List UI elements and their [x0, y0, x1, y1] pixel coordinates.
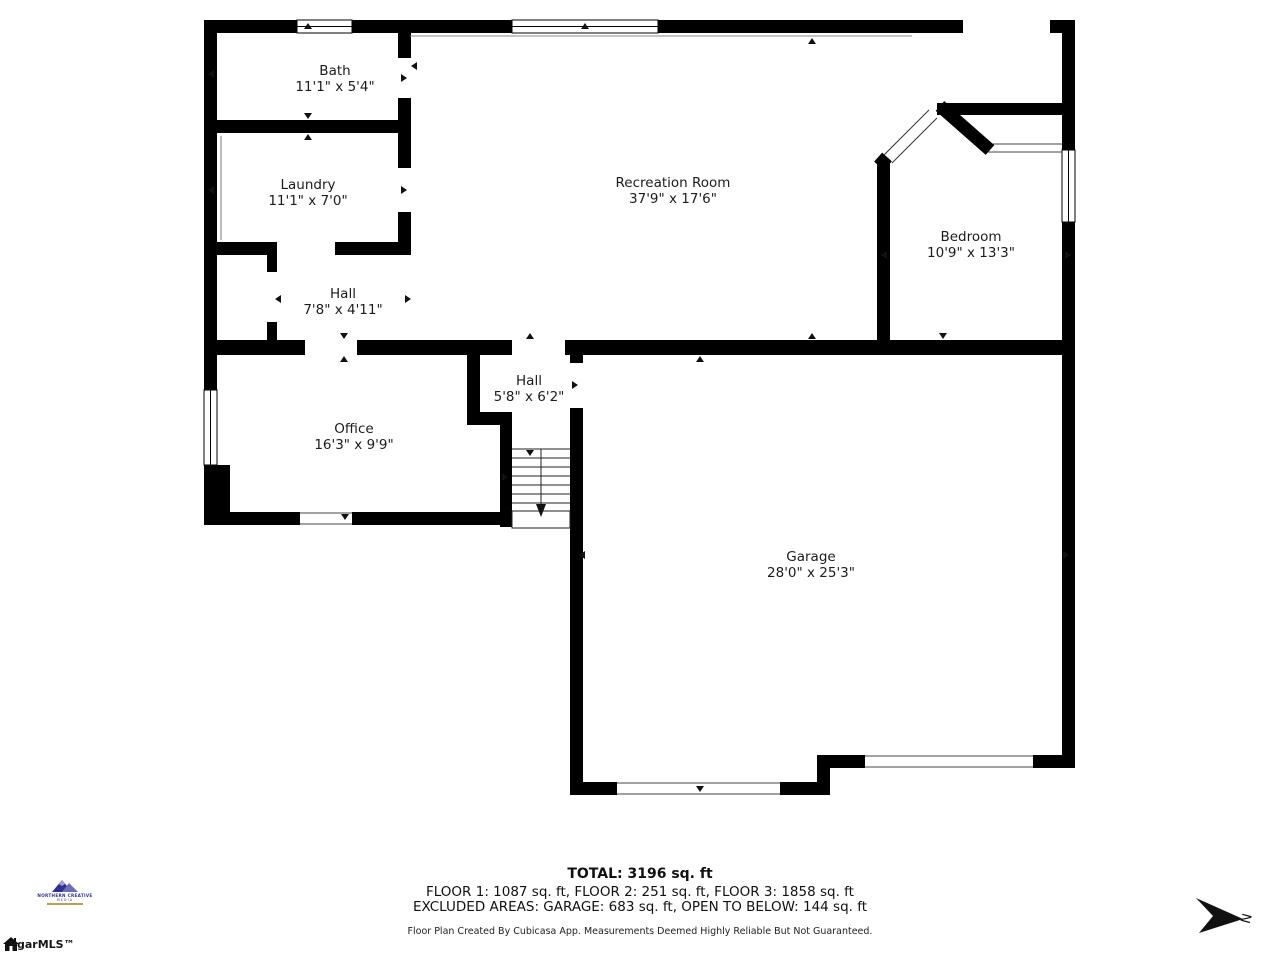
room-label-office: Office 16'3" x 9'9"	[314, 421, 393, 453]
room-label-hall-upper: Hall 7'8" x 4'11"	[303, 286, 382, 318]
room-dims: 10'9" x 13'3"	[927, 245, 1015, 261]
door-tick-icon	[304, 113, 312, 119]
room-name: Bedroom	[927, 229, 1015, 245]
photographer-logo: NORTHERN CREATIVE MEDIA	[34, 878, 96, 905]
room-name: Bath	[295, 63, 374, 79]
disclaimer-text: Floor Plan Created By Cubicasa App. Meas…	[0, 926, 1280, 937]
room-name: Office	[314, 421, 393, 437]
room-dims: 7'8" x 4'11"	[303, 302, 382, 318]
door-ticks	[208, 23, 1071, 792]
room-label-bedroom: Bedroom 10'9" x 13'3"	[927, 229, 1015, 261]
door-tick-icon	[526, 333, 534, 339]
door-tick-icon	[696, 356, 704, 362]
mls-label: garMLS™	[17, 938, 75, 951]
door-tick-icon	[275, 295, 281, 303]
mls-mark: garMLS™	[2, 936, 75, 952]
room-label-laundry: Laundry 11'1" x 7'0"	[268, 177, 347, 209]
walls	[204, 20, 1075, 795]
total-area-text: TOTAL: 3196 sq. ft	[0, 866, 1280, 882]
room-label-bath: Bath 11'1" x 5'4"	[295, 63, 374, 95]
logo-tagline-rule	[47, 903, 83, 905]
room-dims: 37'9" x 17'6"	[616, 191, 731, 207]
door-tick-icon	[341, 514, 349, 520]
room-name: Garage	[767, 549, 855, 565]
door-tick-icon	[401, 186, 407, 194]
door-tick-icon	[405, 295, 411, 303]
room-dims: 16'3" x 9'9"	[314, 437, 393, 453]
room-label-garage: Garage 28'0" x 25'3"	[767, 549, 855, 581]
logo-sub-text: MEDIA	[34, 898, 96, 902]
door-tick-icon	[340, 333, 348, 339]
floor-areas-text: FLOOR 1: 1087 sq. ft, FLOOR 2: 251 sq. f…	[0, 884, 1280, 900]
floor-plan-drawing: N	[0, 0, 1280, 960]
room-name: Laundry	[268, 177, 347, 193]
mountain-logo-icon	[50, 878, 80, 893]
door-tick-icon	[526, 450, 534, 456]
door-tick-icon	[939, 333, 947, 339]
door-tick-icon	[304, 134, 312, 140]
door-tick-icon	[808, 38, 816, 44]
room-name: Hall	[303, 286, 382, 302]
door-tick-icon	[572, 381, 578, 389]
room-name: Hall	[494, 373, 565, 389]
room-label-recreation-room: Recreation Room 37'9" x 17'6"	[616, 175, 731, 207]
door-tick-icon	[340, 356, 348, 362]
room-name: Recreation Room	[616, 175, 731, 191]
excluded-areas-text: EXCLUDED AREAS: GARAGE: 683 sq. ft, OPEN…	[0, 899, 1280, 915]
door-tick-icon	[401, 74, 407, 82]
room-dims: 11'1" x 7'0"	[268, 193, 347, 209]
room-dims: 11'1" x 5'4"	[295, 79, 374, 95]
room-dims: 5'8" x 6'2"	[494, 389, 565, 405]
floor-plan-page: N Bath 11'1" x 5'4" Laundry 11'1" x 7'0"…	[0, 0, 1280, 960]
room-dims: 28'0" x 25'3"	[767, 565, 855, 581]
door-tick-icon	[696, 786, 704, 792]
room-label-hall-lower: Hall 5'8" x 6'2"	[494, 373, 565, 405]
door-tick-icon	[411, 62, 417, 70]
door-tick-icon	[808, 333, 816, 339]
staircase	[512, 449, 570, 528]
